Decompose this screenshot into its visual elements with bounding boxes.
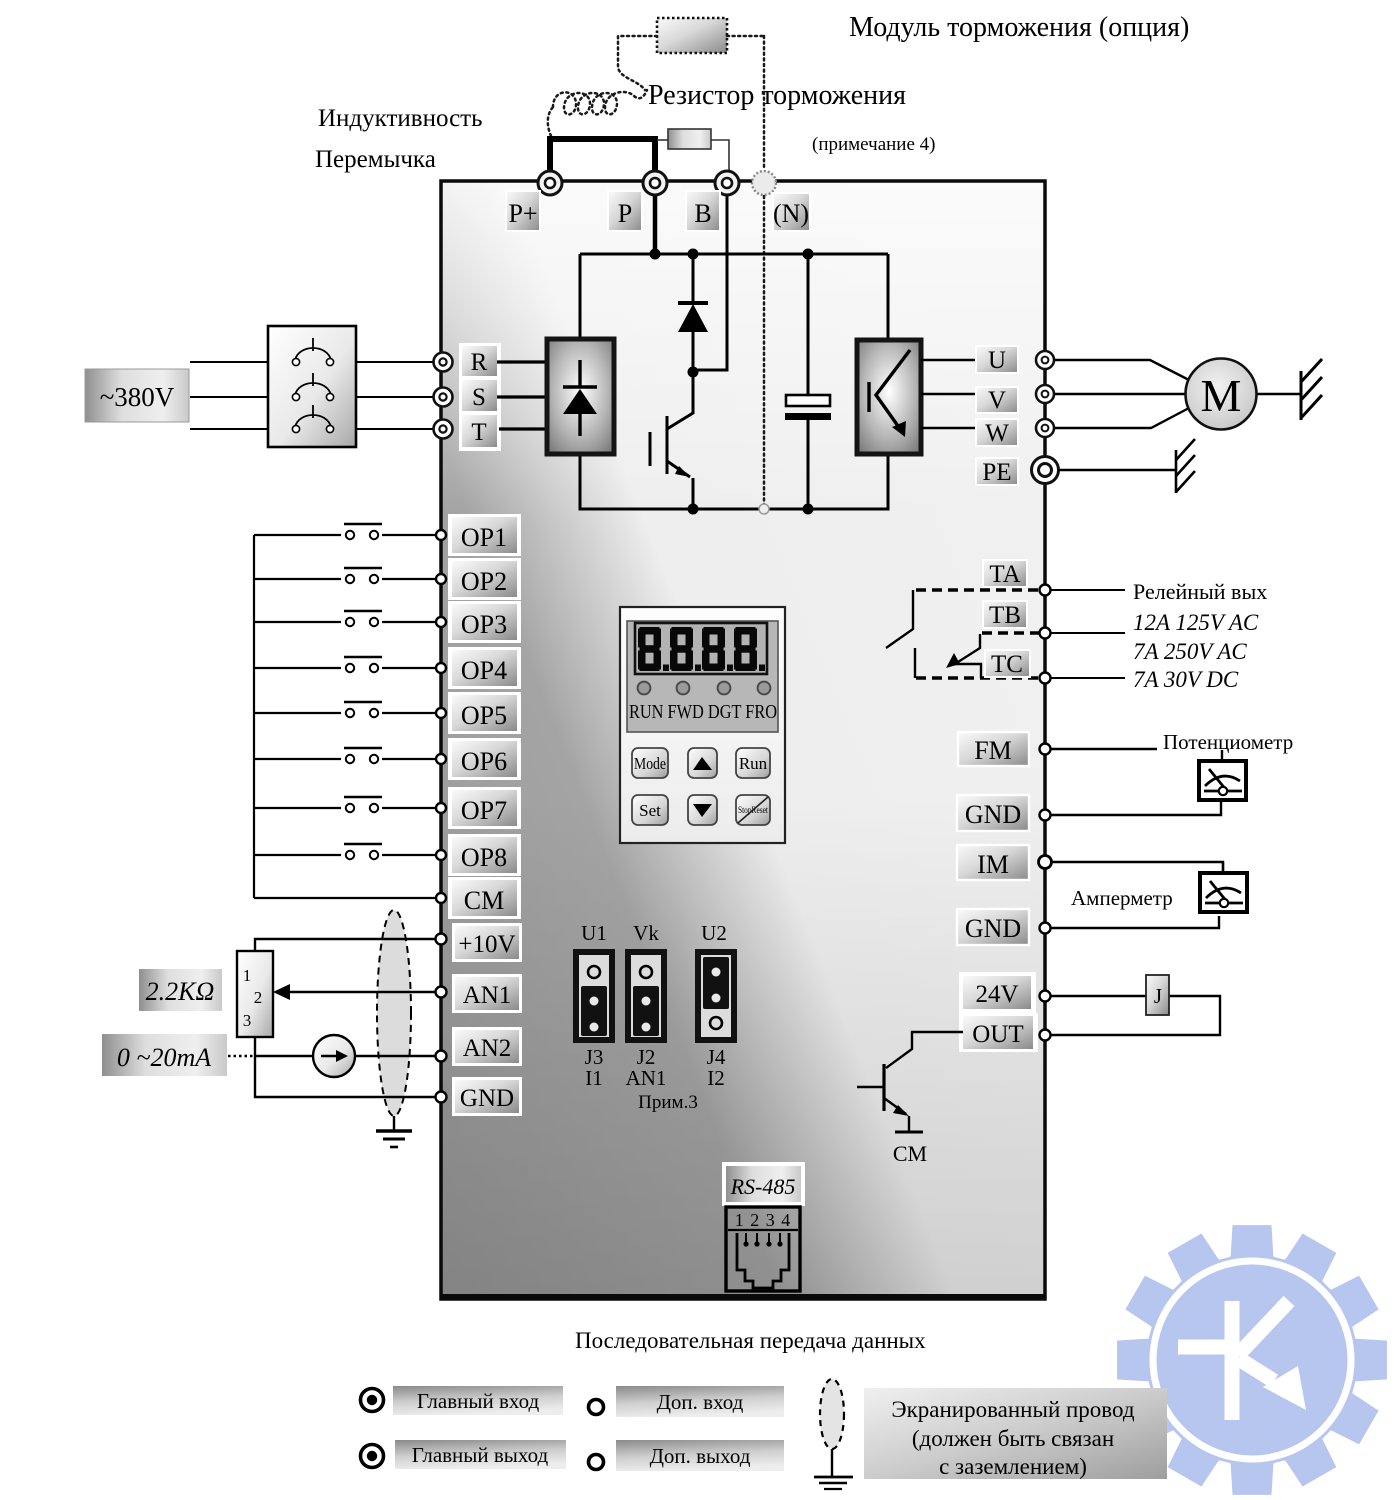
svg-text:Прим.3: Прим.3: [638, 1092, 698, 1113]
svg-text:Mode: Mode: [634, 754, 666, 773]
svg-text:Потенциометр: Потенциометр: [1163, 730, 1293, 754]
svg-text:Последовательная передача данн: Последовательная передача данных: [575, 1328, 926, 1353]
svg-text:Релейный вых: Релейный вых: [1133, 579, 1267, 604]
svg-text:PE: PE: [982, 459, 1011, 486]
svg-text:OP8: OP8: [461, 843, 507, 872]
svg-text:RS-485: RS-485: [730, 1174, 796, 1199]
svg-text:CM: CM: [464, 886, 504, 915]
svg-text:RUN FWD DGT FRO: RUN FWD DGT FRO: [629, 701, 777, 723]
svg-text:AN1: AN1: [626, 1066, 667, 1090]
svg-text:Модуль торможения (опция): Модуль торможения (опция): [849, 12, 1189, 43]
svg-text:CM: CM: [893, 1141, 927, 1166]
svg-text:U1: U1: [581, 921, 607, 945]
svg-text:GND: GND: [965, 914, 1021, 943]
svg-text:OP6: OP6: [461, 747, 507, 776]
svg-text:GND: GND: [460, 1085, 514, 1112]
svg-text:I2: I2: [707, 1066, 725, 1090]
svg-text:AN1: AN1: [463, 982, 512, 1009]
svg-text:P+: P+: [508, 199, 537, 228]
svg-text:+10V: +10V: [458, 931, 515, 958]
svg-text:OP1: OP1: [461, 523, 507, 552]
svg-text:7A 30V DC: 7A 30V DC: [1133, 667, 1239, 692]
svg-text:Амперметр: Амперметр: [1071, 886, 1173, 910]
svg-text:24V: 24V: [975, 981, 1018, 1008]
svg-text:12A 125V AC: 12A 125V AC: [1133, 610, 1259, 635]
svg-text:Set: Set: [639, 801, 661, 820]
svg-text:R: R: [471, 349, 488, 376]
svg-text:3: 3: [243, 1011, 252, 1030]
svg-text:W: W: [985, 420, 1009, 447]
svg-text:OP2: OP2: [461, 567, 507, 596]
svg-text:1: 1: [243, 966, 252, 985]
svg-text:2: 2: [254, 988, 263, 1007]
svg-text:Доп. вход: Доп. вход: [657, 1390, 744, 1414]
svg-text:U2: U2: [701, 921, 727, 945]
svg-text:OP5: OP5: [461, 701, 507, 730]
svg-text:2.2KΩ: 2.2KΩ: [146, 977, 215, 1006]
svg-text:Run: Run: [739, 754, 768, 773]
svg-text:(N): (N): [773, 199, 809, 228]
svg-text:OUT: OUT: [972, 1021, 1023, 1048]
svg-text:7A 250V AC: 7A 250V AC: [1133, 639, 1247, 664]
svg-text:(примечание 4): (примечание 4): [812, 134, 935, 155]
svg-text:M: M: [1201, 370, 1242, 421]
svg-text:Доп. выход: Доп. выход: [650, 1444, 751, 1468]
svg-text:OP3: OP3: [461, 610, 507, 639]
svg-text:P: P: [618, 199, 632, 228]
svg-text:TC: TC: [991, 651, 1023, 678]
svg-text:IM: IM: [977, 850, 1009, 879]
svg-text:V: V: [988, 387, 1006, 414]
svg-text:J: J: [1154, 984, 1162, 1008]
svg-text:(должен быть связан: (должен быть связан: [912, 1426, 1114, 1451]
svg-text:Резистор торможения: Резистор торможения: [648, 80, 906, 111]
svg-text:Перемычка: Перемычка: [315, 146, 436, 173]
svg-text:Главный выход: Главный выход: [412, 1443, 549, 1467]
svg-text:FM: FM: [974, 736, 1012, 765]
svg-text:~380V: ~380V: [100, 382, 175, 412]
svg-text:T: T: [471, 419, 486, 446]
svg-text:Индуктивность: Индуктивность: [318, 105, 483, 132]
svg-text:1 2 3 4: 1 2 3 4: [735, 1210, 792, 1230]
svg-text:OP7: OP7: [461, 796, 507, 825]
svg-text:B: B: [694, 199, 711, 228]
svg-text:AN2: AN2: [463, 1035, 512, 1062]
svg-text:Главный вход: Главный вход: [417, 1389, 540, 1413]
svg-text:с заземлением): с заземлением): [939, 1454, 1087, 1479]
svg-text:U: U: [988, 347, 1006, 374]
svg-text:Экранированный провод: Экранированный провод: [891, 1397, 1134, 1422]
svg-text:S: S: [472, 384, 486, 411]
svg-text:I1: I1: [585, 1066, 603, 1090]
svg-text:OP4: OP4: [461, 656, 507, 685]
svg-text:GND: GND: [965, 800, 1021, 829]
svg-text:TA: TA: [989, 561, 1020, 588]
svg-text:TB: TB: [989, 602, 1021, 629]
svg-text:0 ~20mA: 0 ~20mA: [117, 1043, 211, 1072]
svg-text:Vk: Vk: [633, 921, 659, 945]
